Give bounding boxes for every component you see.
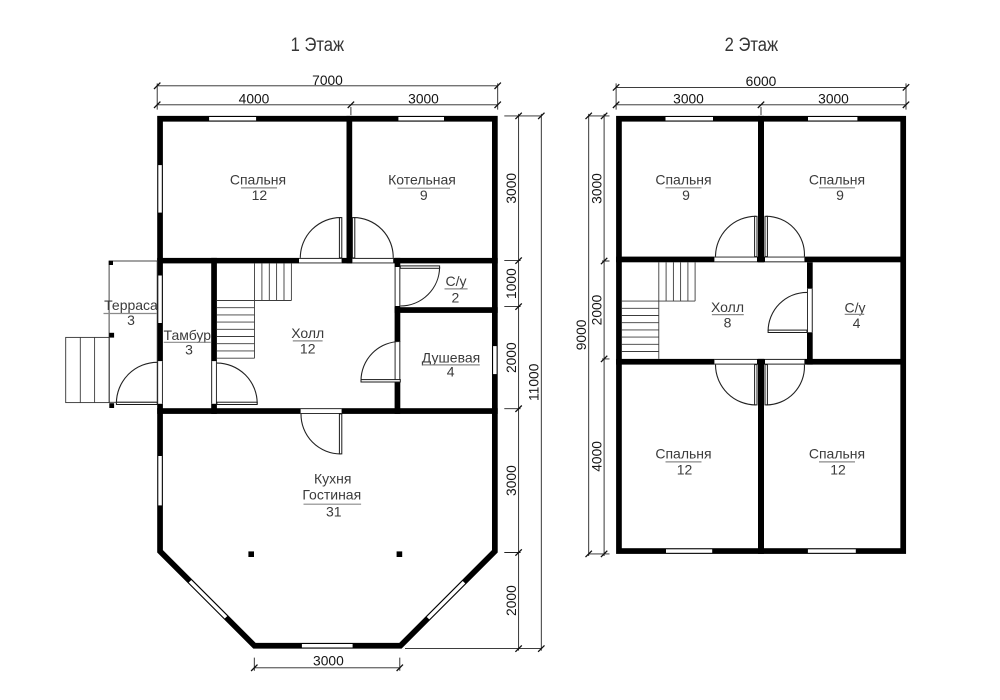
svg-text:Котельная: Котельная <box>388 172 456 188</box>
svg-text:12: 12 <box>300 341 316 357</box>
svg-text:11000: 11000 <box>526 363 541 401</box>
svg-text:3000: 3000 <box>590 173 605 204</box>
svg-text:Кухня: Кухня <box>314 470 351 486</box>
svg-text:9: 9 <box>420 187 428 203</box>
svg-text:1000: 1000 <box>504 268 519 299</box>
svg-text:Спальня: Спальня <box>655 172 711 188</box>
svg-text:9: 9 <box>836 187 844 203</box>
svg-text:Гостиная: Гостиная <box>302 487 361 503</box>
svg-text:3000: 3000 <box>818 92 849 107</box>
svg-text:12: 12 <box>677 462 693 478</box>
svg-text:4: 4 <box>853 315 861 331</box>
svg-text:Спальня: Спальня <box>230 172 286 188</box>
svg-text:С/у: С/у <box>446 273 467 289</box>
svg-text:1 Этаж: 1 Этаж <box>291 35 345 56</box>
svg-text:Терраса: Терраса <box>104 297 158 313</box>
svg-text:2: 2 <box>452 289 460 305</box>
svg-text:4000: 4000 <box>590 441 605 472</box>
svg-text:2000: 2000 <box>590 294 605 325</box>
svg-text:8: 8 <box>724 315 732 331</box>
svg-text:Холл: Холл <box>291 325 324 341</box>
svg-text:Спальня: Спальня <box>655 446 711 462</box>
svg-text:3: 3 <box>127 312 135 328</box>
svg-text:6000: 6000 <box>746 74 777 89</box>
svg-text:3000: 3000 <box>504 173 519 204</box>
svg-text:2 Этаж: 2 Этаж <box>725 35 779 56</box>
svg-text:4000: 4000 <box>239 92 270 107</box>
svg-text:3000: 3000 <box>313 654 344 669</box>
svg-text:9: 9 <box>682 187 690 203</box>
svg-text:31: 31 <box>326 504 342 520</box>
svg-text:2000: 2000 <box>504 342 519 373</box>
svg-text:2000: 2000 <box>504 585 519 616</box>
svg-text:С/у: С/у <box>845 300 866 316</box>
svg-text:3000: 3000 <box>673 92 704 107</box>
svg-text:Спальня: Спальня <box>809 172 865 188</box>
svg-text:Холл: Холл <box>711 299 744 315</box>
svg-text:7000: 7000 <box>312 73 343 88</box>
svg-text:3: 3 <box>185 342 193 358</box>
svg-text:12: 12 <box>830 462 846 478</box>
svg-text:12: 12 <box>252 187 268 203</box>
svg-text:4: 4 <box>447 364 455 380</box>
svg-text:3000: 3000 <box>504 465 519 496</box>
svg-text:9000: 9000 <box>574 319 589 350</box>
svg-text:3000: 3000 <box>408 92 439 107</box>
svg-text:Спальня: Спальня <box>809 446 865 462</box>
